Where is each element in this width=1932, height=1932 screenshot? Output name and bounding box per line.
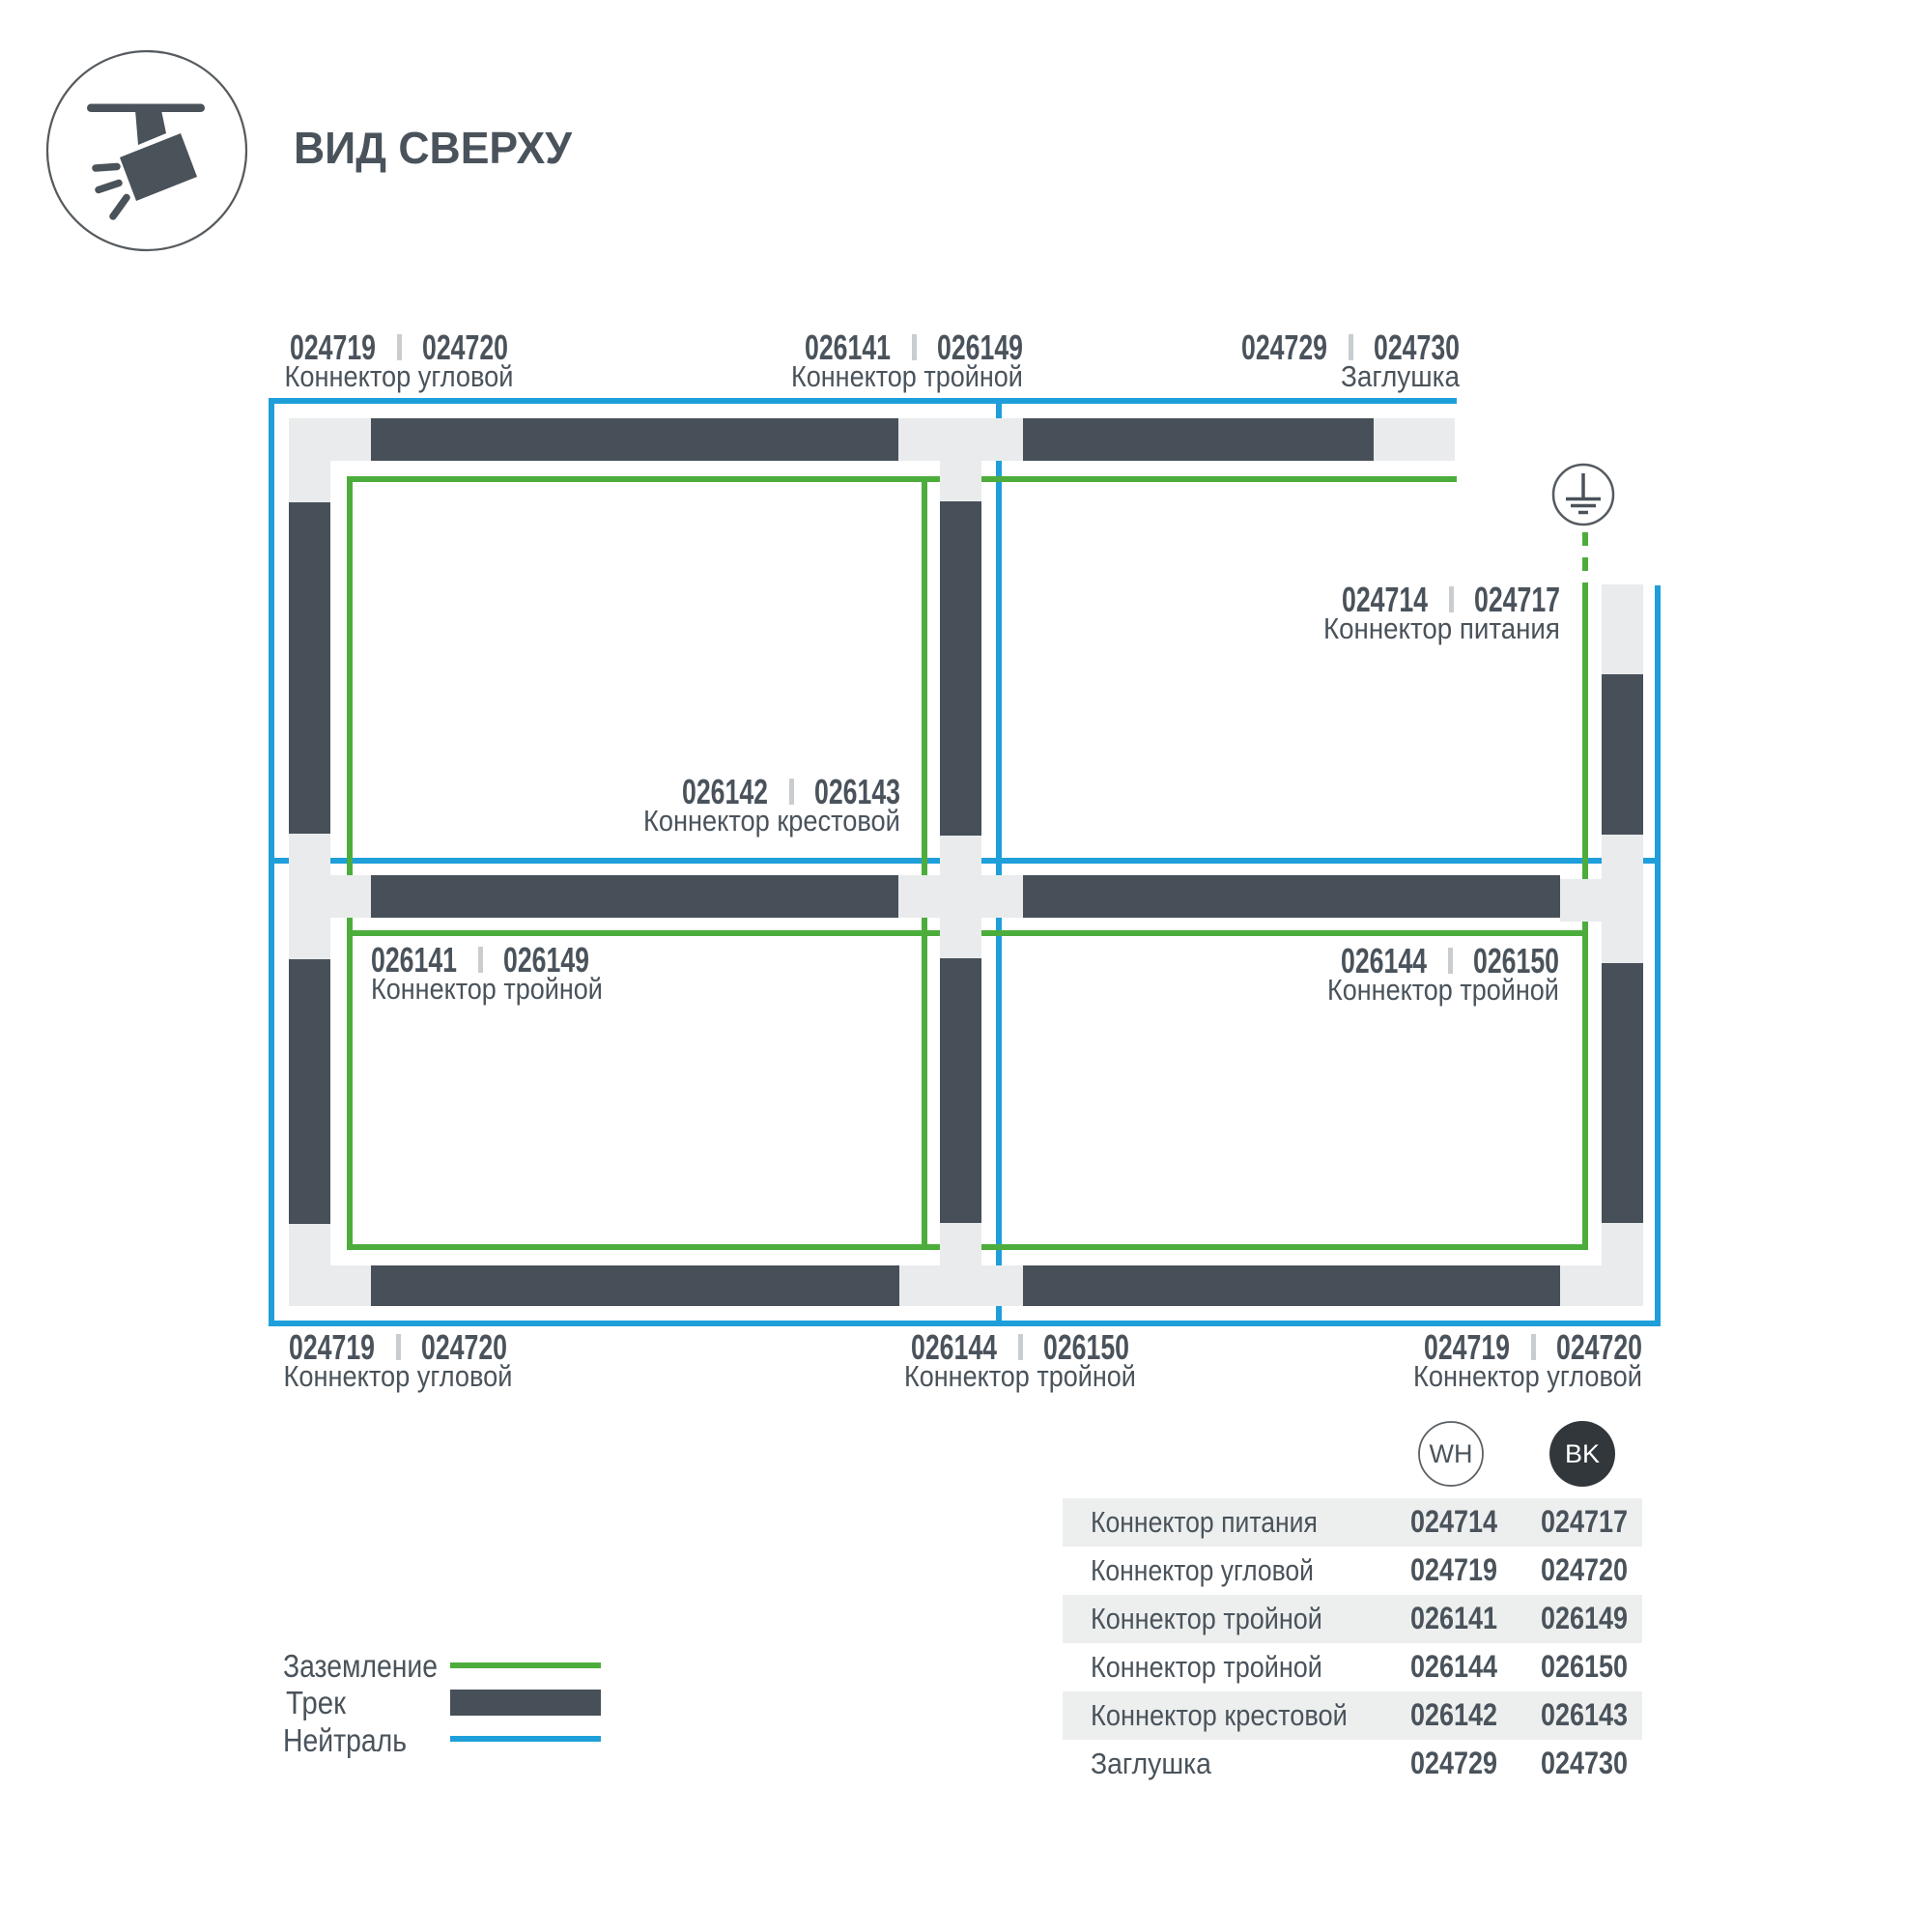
svg-text:Коннектор тройной: Коннектор тройной — [371, 973, 603, 1006]
svg-text:Коннектор крестовой: Коннектор крестовой — [1091, 1699, 1348, 1732]
svg-text:024714: 024714 — [1410, 1505, 1497, 1540]
svg-text:Трек: Трек — [286, 1685, 346, 1720]
svg-text:Заземление: Заземление — [283, 1648, 438, 1685]
svg-text:024717: 024717 — [1541, 1505, 1628, 1540]
svg-text:Заглушка: Заглушка — [1091, 1747, 1211, 1780]
svg-text:Коннектор питания: Коннектор питания — [1091, 1506, 1318, 1539]
svg-text:Коннектор крестовой: Коннектор крестовой — [643, 805, 900, 838]
svg-text:Заглушка: Заглушка — [1341, 360, 1461, 394]
svg-text:Коннектор питания: Коннектор питания — [1323, 612, 1560, 646]
svg-text:Коннектор тройной: Коннектор тройной — [904, 1360, 1136, 1393]
svg-text:026149: 026149 — [1541, 1602, 1628, 1636]
svg-text:026144: 026144 — [1410, 1650, 1497, 1685]
svg-text:024729: 024729 — [1241, 327, 1327, 367]
svg-text:026150: 026150 — [1541, 1650, 1628, 1685]
svg-text:Коннектор тройной: Коннектор тройной — [1327, 974, 1559, 1007]
svg-text:WH: WH — [1430, 1439, 1473, 1468]
svg-text:Коннектор тройной: Коннектор тройной — [1091, 1603, 1322, 1635]
svg-text:026142: 026142 — [1410, 1698, 1497, 1733]
svg-text:BK: BK — [1565, 1439, 1600, 1468]
svg-text:ВИД СВЕРХУ: ВИД СВЕРХУ — [294, 123, 573, 173]
svg-text:024730: 024730 — [1541, 1747, 1628, 1781]
svg-text:024729: 024729 — [1410, 1747, 1497, 1781]
svg-text:Коннектор угловой: Коннектор угловой — [1091, 1554, 1314, 1587]
svg-text:Коннектор тройной: Коннектор тройной — [791, 360, 1023, 393]
svg-text:Коннектор угловой: Коннектор угловой — [285, 360, 514, 393]
svg-text:026143: 026143 — [1541, 1698, 1628, 1733]
svg-text:Коннектор тройной: Коннектор тройной — [1091, 1651, 1322, 1684]
svg-text:026141: 026141 — [1410, 1602, 1497, 1636]
svg-text:Коннектор угловой: Коннектор угловой — [284, 1360, 513, 1393]
svg-text:Коннектор угловой: Коннектор угловой — [1413, 1360, 1642, 1393]
svg-text:Нейтраль: Нейтраль — [283, 1722, 407, 1759]
svg-text:024720: 024720 — [1541, 1553, 1628, 1588]
svg-text:024719: 024719 — [1410, 1553, 1497, 1588]
